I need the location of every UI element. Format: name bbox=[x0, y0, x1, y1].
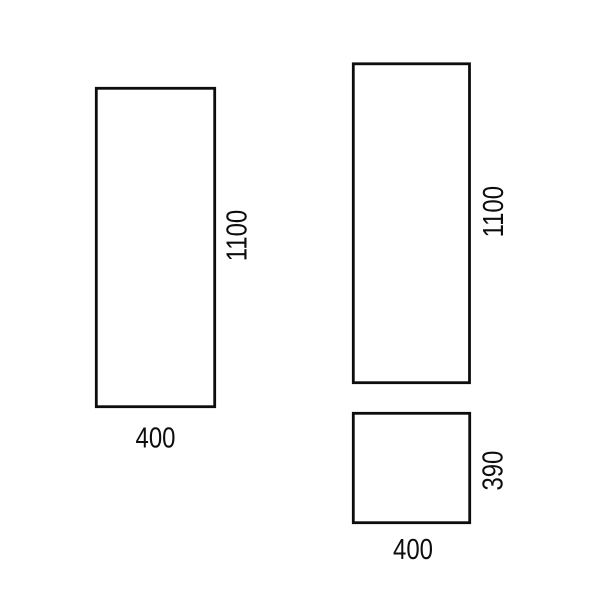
svg-text:400: 400 bbox=[136, 422, 176, 454]
svg-text:1100: 1100 bbox=[220, 210, 252, 261]
svg-text:1100: 1100 bbox=[477, 186, 509, 237]
svg-text:400: 400 bbox=[393, 533, 433, 565]
svg-text:390: 390 bbox=[477, 451, 509, 491]
